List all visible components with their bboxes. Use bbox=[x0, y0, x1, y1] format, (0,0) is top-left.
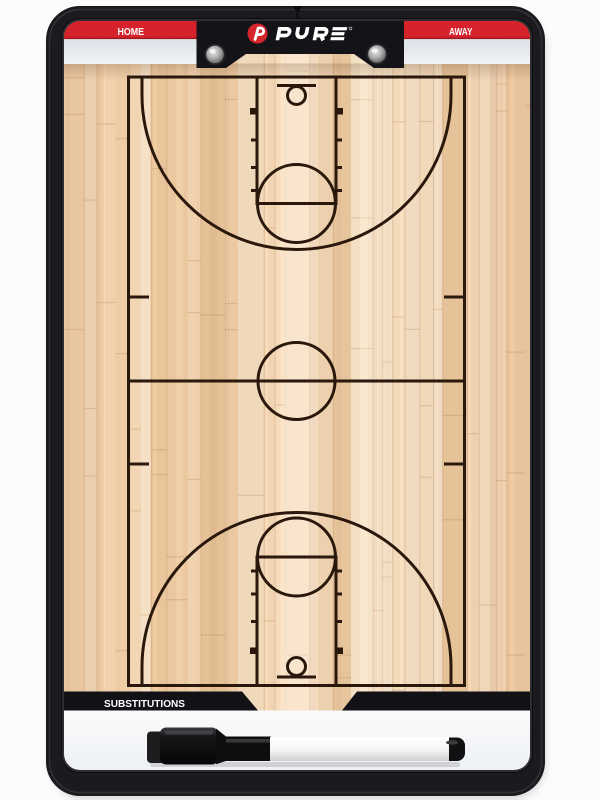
svg-text:AWAY: AWAY bbox=[449, 26, 473, 38]
svg-text:SUBSTITUTIONS: SUBSTITUTIONS bbox=[104, 698, 185, 710]
svg-text:HOME: HOME bbox=[118, 26, 145, 38]
